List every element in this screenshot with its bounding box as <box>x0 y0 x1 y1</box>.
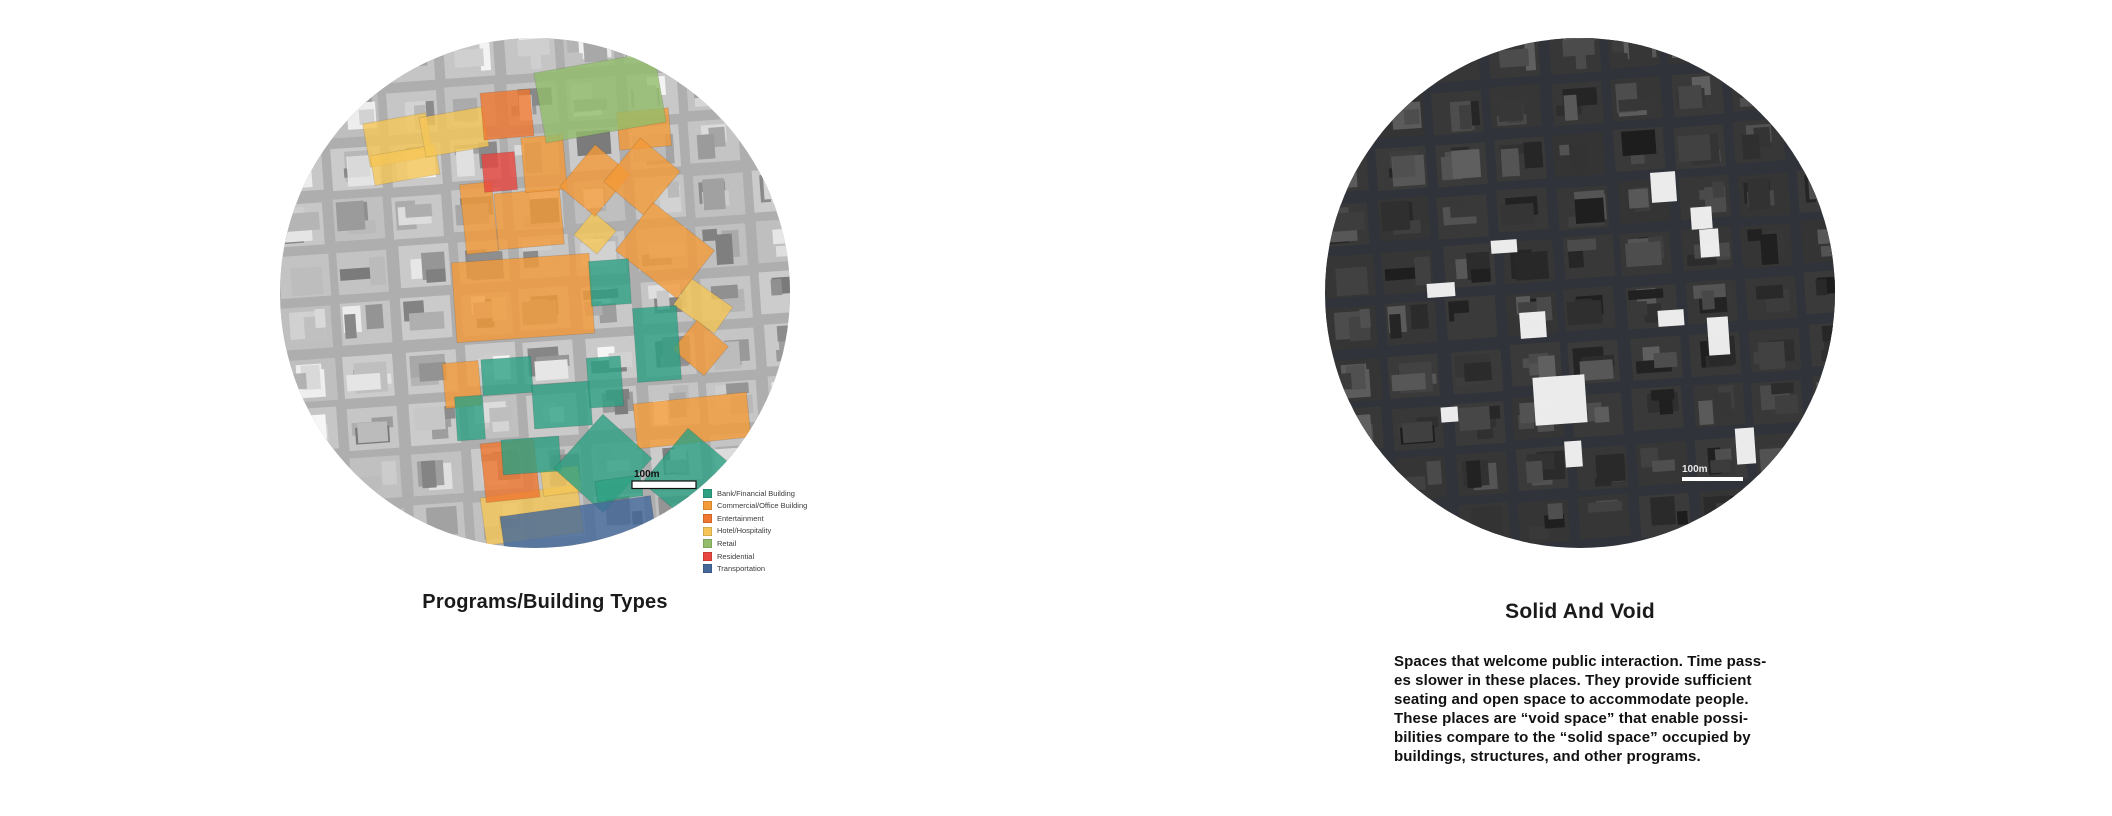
building-bank <box>532 381 593 429</box>
void-space <box>1519 311 1547 339</box>
scale-bar <box>632 481 696 489</box>
building-bank <box>501 436 561 475</box>
legend-swatch-residential <box>703 552 712 561</box>
void-space <box>1735 427 1756 464</box>
void-space <box>1491 239 1518 254</box>
scale-label: 100m <box>1682 464 1708 475</box>
building-commercial <box>459 182 498 255</box>
solid-and-void-map: 100m <box>1325 38 1835 548</box>
legend-item-retail: Retail <box>703 537 807 550</box>
legend-swatch-bank <box>703 489 712 498</box>
building-residential <box>481 152 517 193</box>
scale-bar <box>1682 477 1743 481</box>
legend-label: Residential <box>717 553 754 561</box>
legend-label: Commercial/Office Building <box>717 502 807 510</box>
map-left-content: 100m <box>280 38 790 548</box>
void-space <box>1690 206 1712 229</box>
void-space <box>1564 440 1583 467</box>
void-space <box>1427 282 1456 298</box>
programs-building-types-map: 100m <box>280 38 790 548</box>
presentation-page: 100m 100m Bank/Financial BuildingCommerc… <box>0 0 2112 816</box>
legend-item-bank: Bank/Financial Building <box>703 487 807 500</box>
legend-swatch-hotel <box>703 527 712 536</box>
legend-label: Hotel/Hospitality <box>717 527 771 535</box>
void-space <box>1699 228 1720 257</box>
scale-label: 100m <box>634 469 660 480</box>
building-bank <box>454 395 485 441</box>
legend-item-commercial: Commercial/Office Building <box>703 500 807 513</box>
legend-swatch-retail <box>703 539 712 548</box>
map-right-content: 100m <box>1325 38 1835 548</box>
building-commercial <box>494 188 565 250</box>
legend-swatch-entertainment <box>703 514 712 523</box>
void-space <box>1650 171 1677 203</box>
building-commercial <box>521 134 568 192</box>
left-figure-title: Programs/Building Types <box>395 591 695 614</box>
building-types-legend: Bank/Financial BuildingCommercial/Office… <box>703 487 807 575</box>
building-bank <box>632 306 681 383</box>
right-figure-title: Solid And Void <box>1430 600 1730 624</box>
legend-label: Retail <box>717 540 736 548</box>
solid-void-description: Spaces that welcome public interaction. … <box>1394 652 1824 766</box>
building-bank <box>586 356 623 408</box>
building-bank <box>481 356 533 395</box>
programs-map-figure: 100m <box>280 38 790 548</box>
legend-item-entertainment: Entertainment <box>703 512 807 525</box>
legend-item-residential: Residential <box>703 550 807 563</box>
legend-label: Bank/Financial Building <box>717 490 795 498</box>
void-space <box>1440 406 1458 422</box>
legend-item-transportation: Transportation <box>703 563 807 576</box>
legend-swatch-commercial <box>703 501 712 510</box>
legend-label: Entertainment <box>717 515 764 523</box>
legend-swatch-transportation <box>703 564 712 573</box>
void-space <box>1657 309 1684 327</box>
void-space <box>1532 374 1587 426</box>
building-entertainment <box>480 89 534 140</box>
legend-label: Transportation <box>717 565 765 573</box>
building-commercial <box>451 253 594 342</box>
legend-item-hotel: Hotel/Hospitality <box>703 525 807 538</box>
solid-void-map-figure: 100m <box>1325 38 1835 548</box>
building-bank <box>588 259 631 307</box>
void-space <box>1707 316 1731 355</box>
